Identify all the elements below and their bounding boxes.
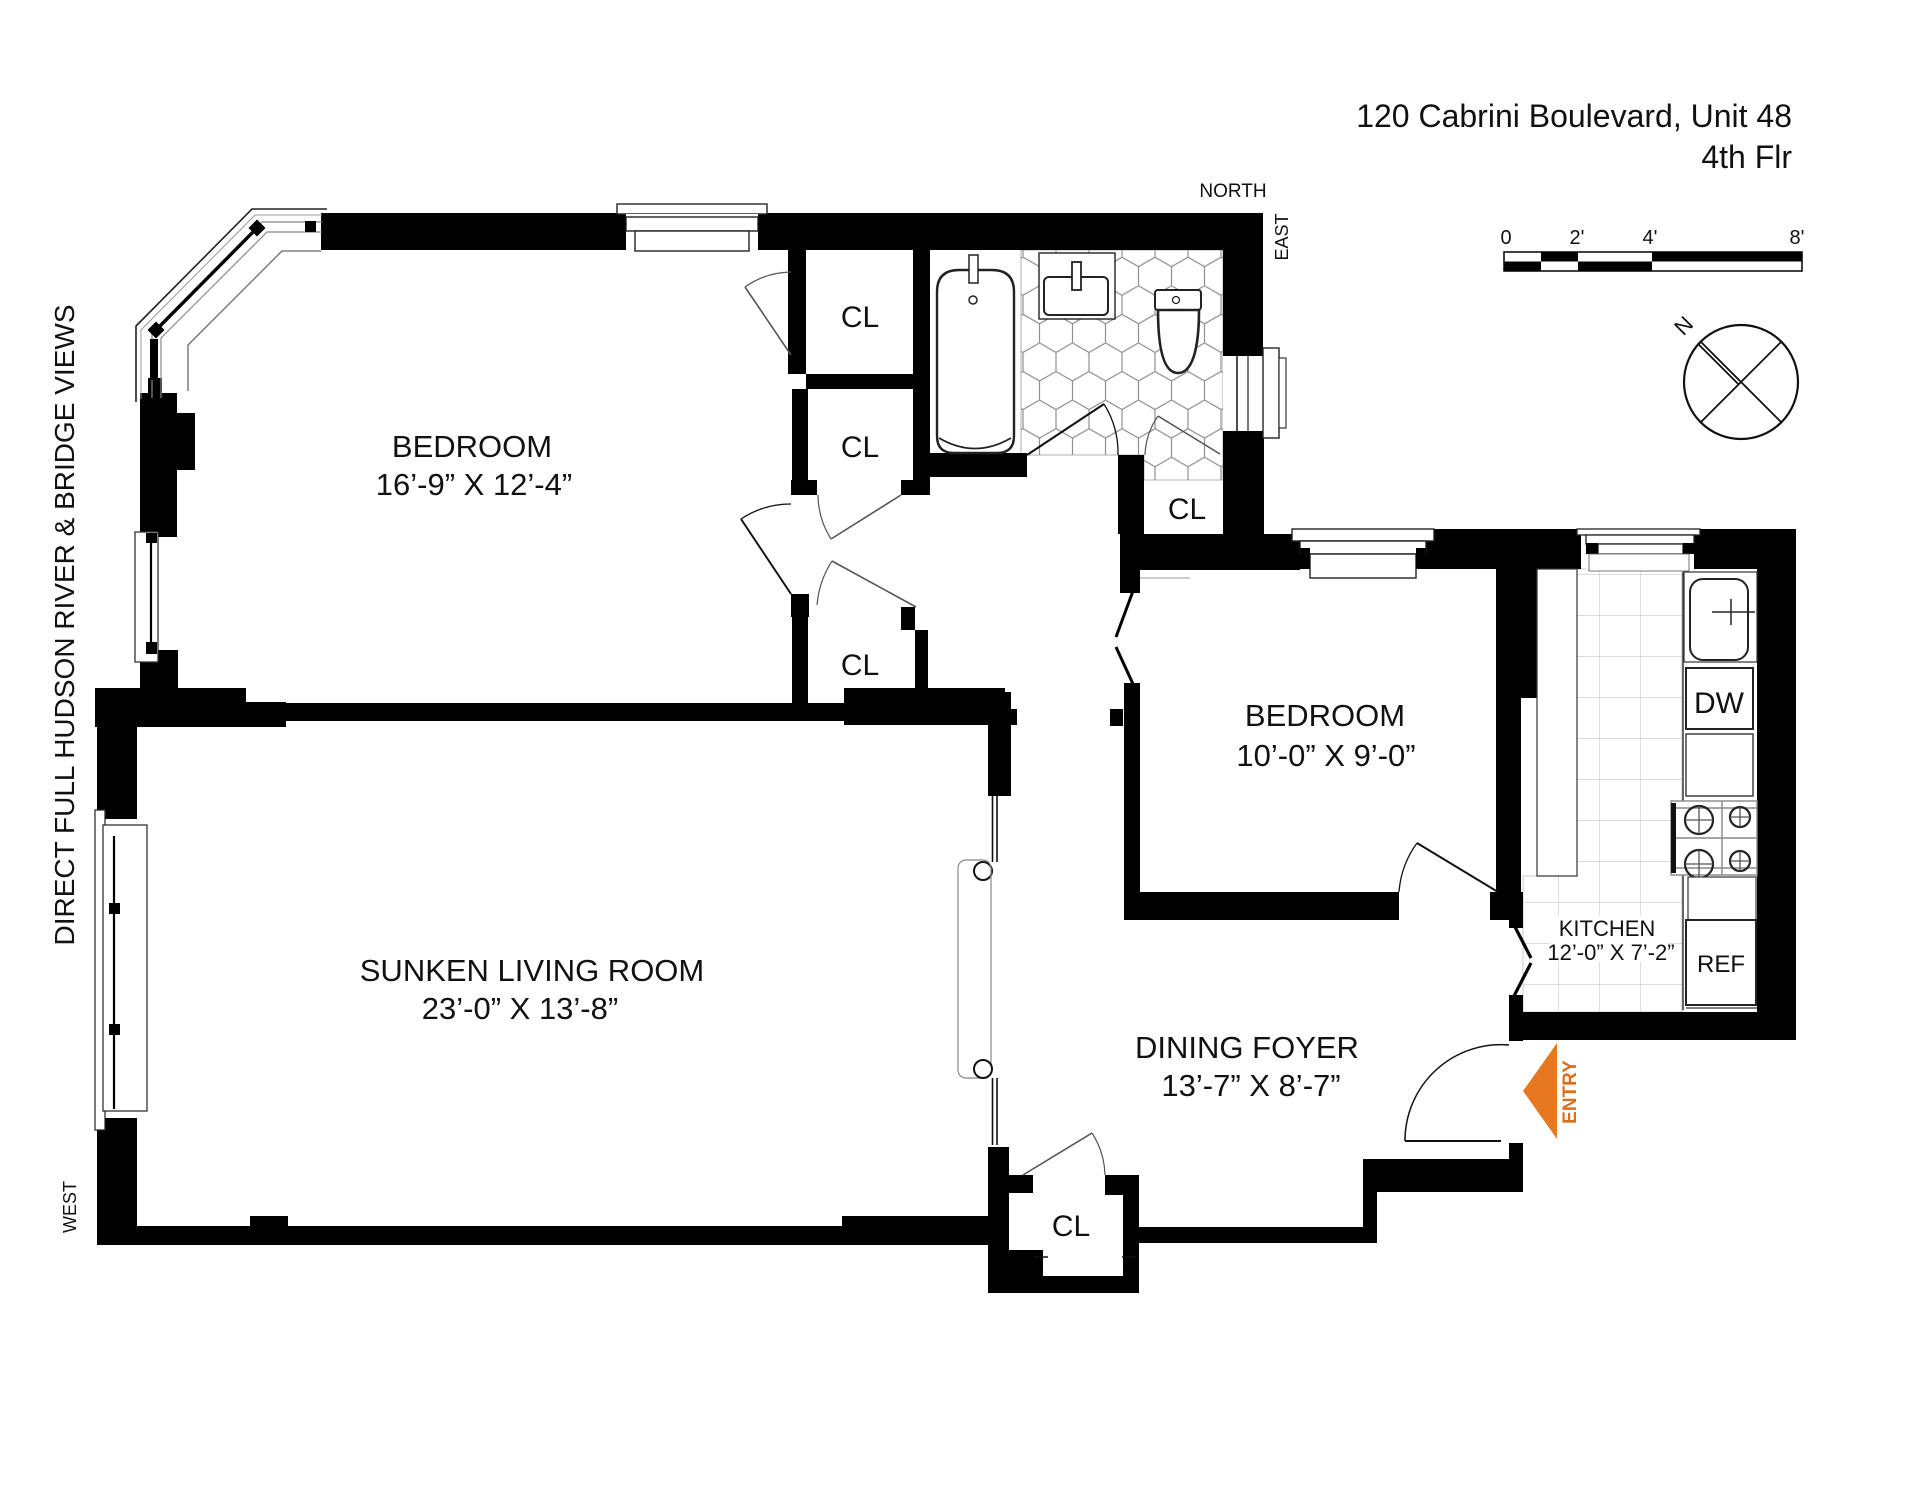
svg-text:12’-0” X 7’-2”: 12’-0” X 7’-2” <box>1547 940 1674 965</box>
svg-text:CL: CL <box>841 301 879 334</box>
svg-text:DINING FOYER: DINING FOYER <box>1135 1030 1359 1065</box>
svg-text:10’-0” X 9’-0”: 10’-0” X 9’-0” <box>1236 738 1415 773</box>
svg-text:CL: CL <box>1052 1210 1090 1243</box>
svg-text:WEST: WEST <box>60 1181 80 1233</box>
svg-text:CL: CL <box>841 649 879 682</box>
svg-text:8': 8' <box>1790 227 1805 249</box>
svg-text:SUNKEN LIVING ROOM: SUNKEN LIVING ROOM <box>360 953 705 988</box>
svg-text:16’-9” X 12’-4”: 16’-9” X 12’-4” <box>376 467 572 502</box>
svg-text:2': 2' <box>1570 227 1585 249</box>
svg-text:DW: DW <box>1694 687 1745 720</box>
svg-text:4th Flr: 4th Flr <box>1701 139 1792 175</box>
svg-text:120 Cabrini Boulevard, Unit 48: 120 Cabrini Boulevard, Unit 48 <box>1356 98 1792 134</box>
svg-text:CL: CL <box>841 431 879 464</box>
svg-text:ENTRY: ENTRY <box>1560 1060 1581 1124</box>
svg-text:EAST: EAST <box>1272 213 1292 260</box>
svg-text:BEDROOM: BEDROOM <box>392 429 552 464</box>
svg-text:DIRECT FULL HUDSON RIVER & BRI: DIRECT FULL HUDSON RIVER & BRIDGE VIEWS <box>49 305 80 946</box>
svg-text:BEDROOM: BEDROOM <box>1245 698 1405 733</box>
svg-text:REF: REF <box>1697 951 1745 978</box>
svg-text:CL: CL <box>1168 493 1206 526</box>
svg-text:NORTH: NORTH <box>1199 181 1266 202</box>
svg-text:KITCHEN: KITCHEN <box>1559 916 1656 941</box>
svg-text:23’-0” X 13’-8”: 23’-0” X 13’-8” <box>422 991 618 1026</box>
svg-text:0: 0 <box>1500 227 1511 249</box>
svg-text:4': 4' <box>1643 227 1658 249</box>
svg-text:13’-7” X 8’-7”: 13’-7” X 8’-7” <box>1161 1068 1340 1103</box>
